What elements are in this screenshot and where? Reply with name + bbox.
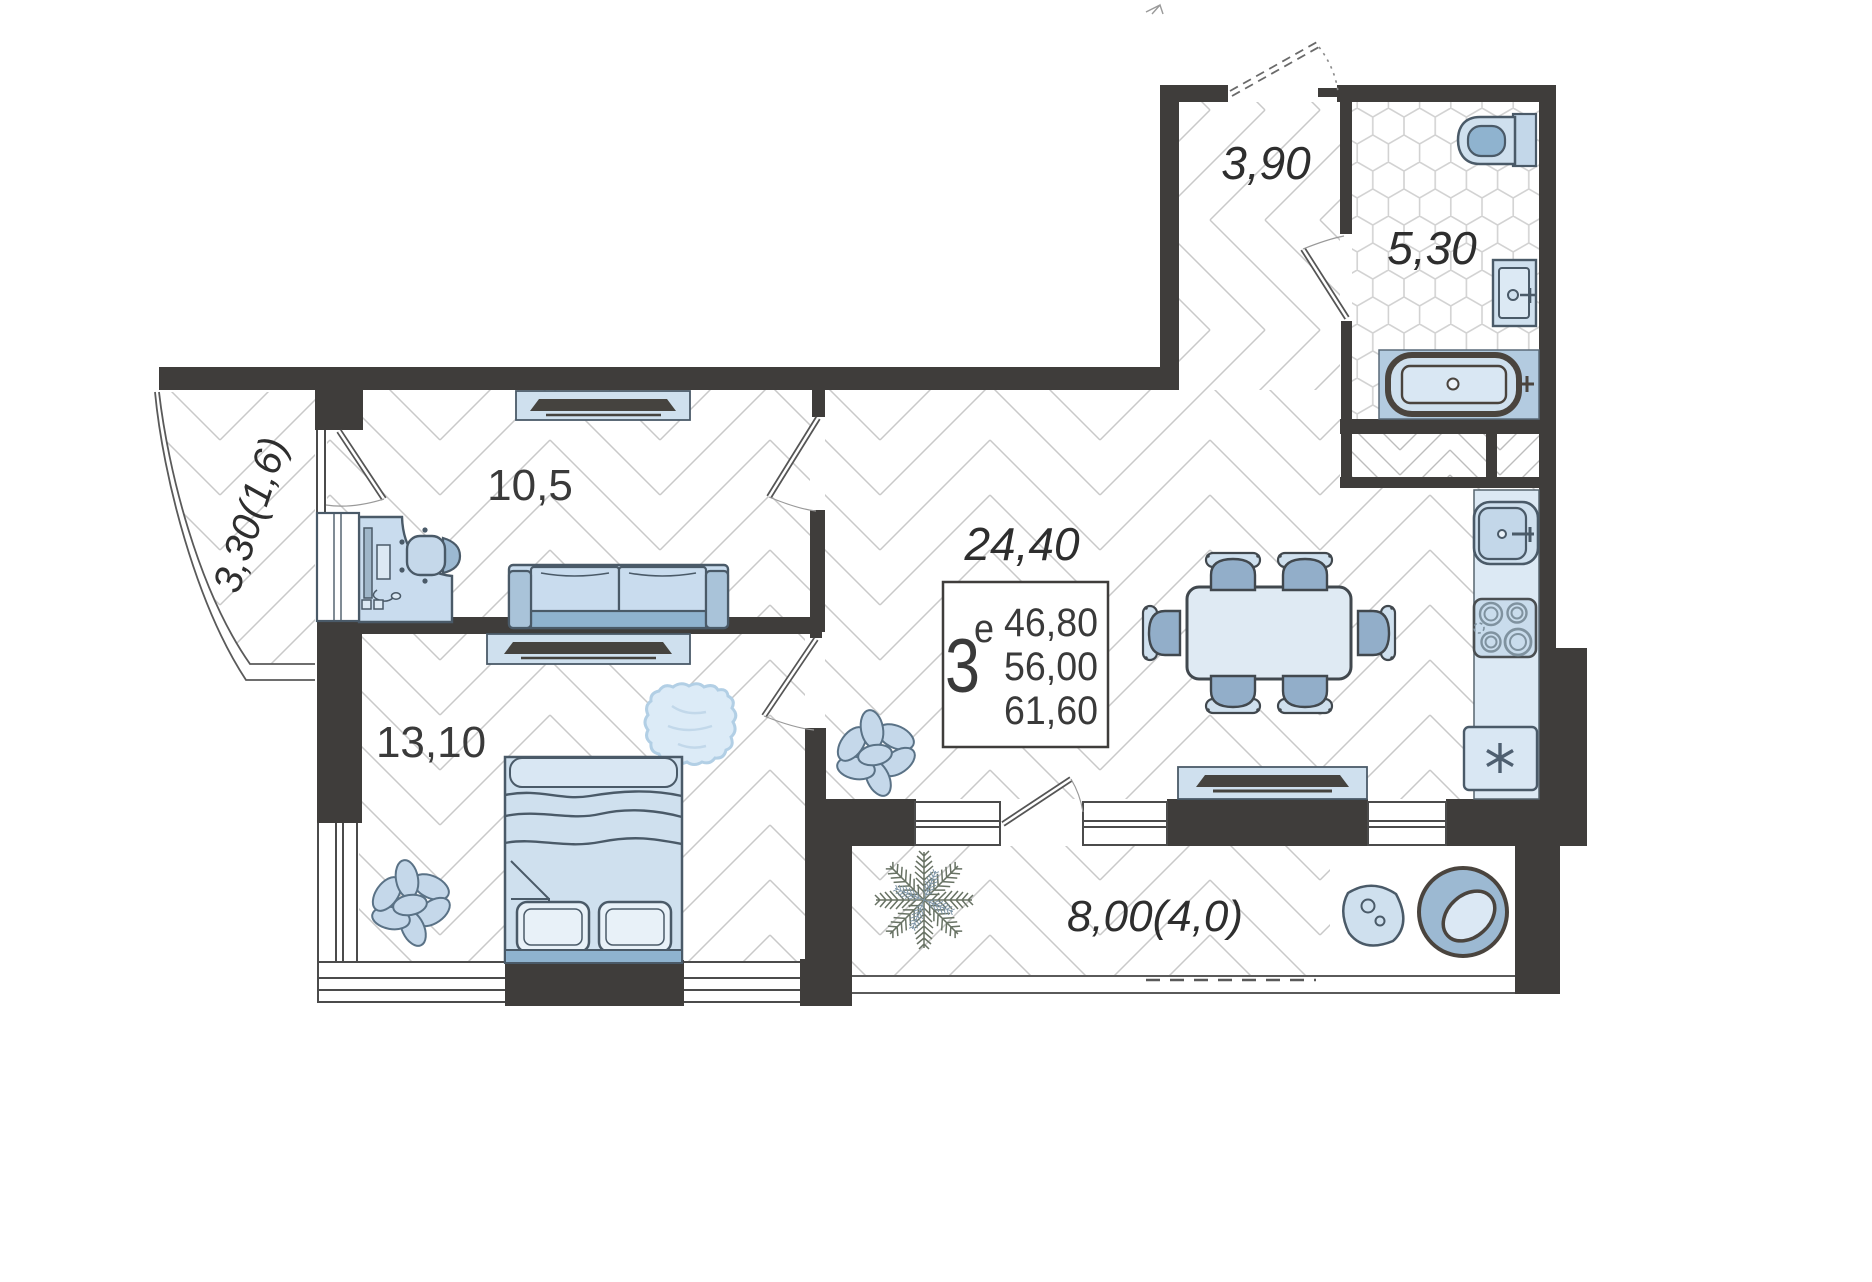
svg-text:56,00: 56,00 bbox=[1004, 645, 1098, 689]
svg-text:8,00(4,0): 8,00(4,0) bbox=[1067, 892, 1243, 941]
svg-text:13,10: 13,10 bbox=[376, 718, 486, 767]
svg-text:3,90: 3,90 bbox=[1221, 137, 1311, 189]
svg-text:10,5: 10,5 bbox=[487, 461, 573, 510]
svg-text:61,60: 61,60 bbox=[1004, 689, 1098, 733]
svg-text:24,40: 24,40 bbox=[963, 518, 1080, 570]
svg-text:е: е bbox=[974, 607, 994, 651]
svg-text:5,30: 5,30 bbox=[1387, 222, 1477, 274]
svg-text:46,80: 46,80 bbox=[1004, 601, 1098, 645]
